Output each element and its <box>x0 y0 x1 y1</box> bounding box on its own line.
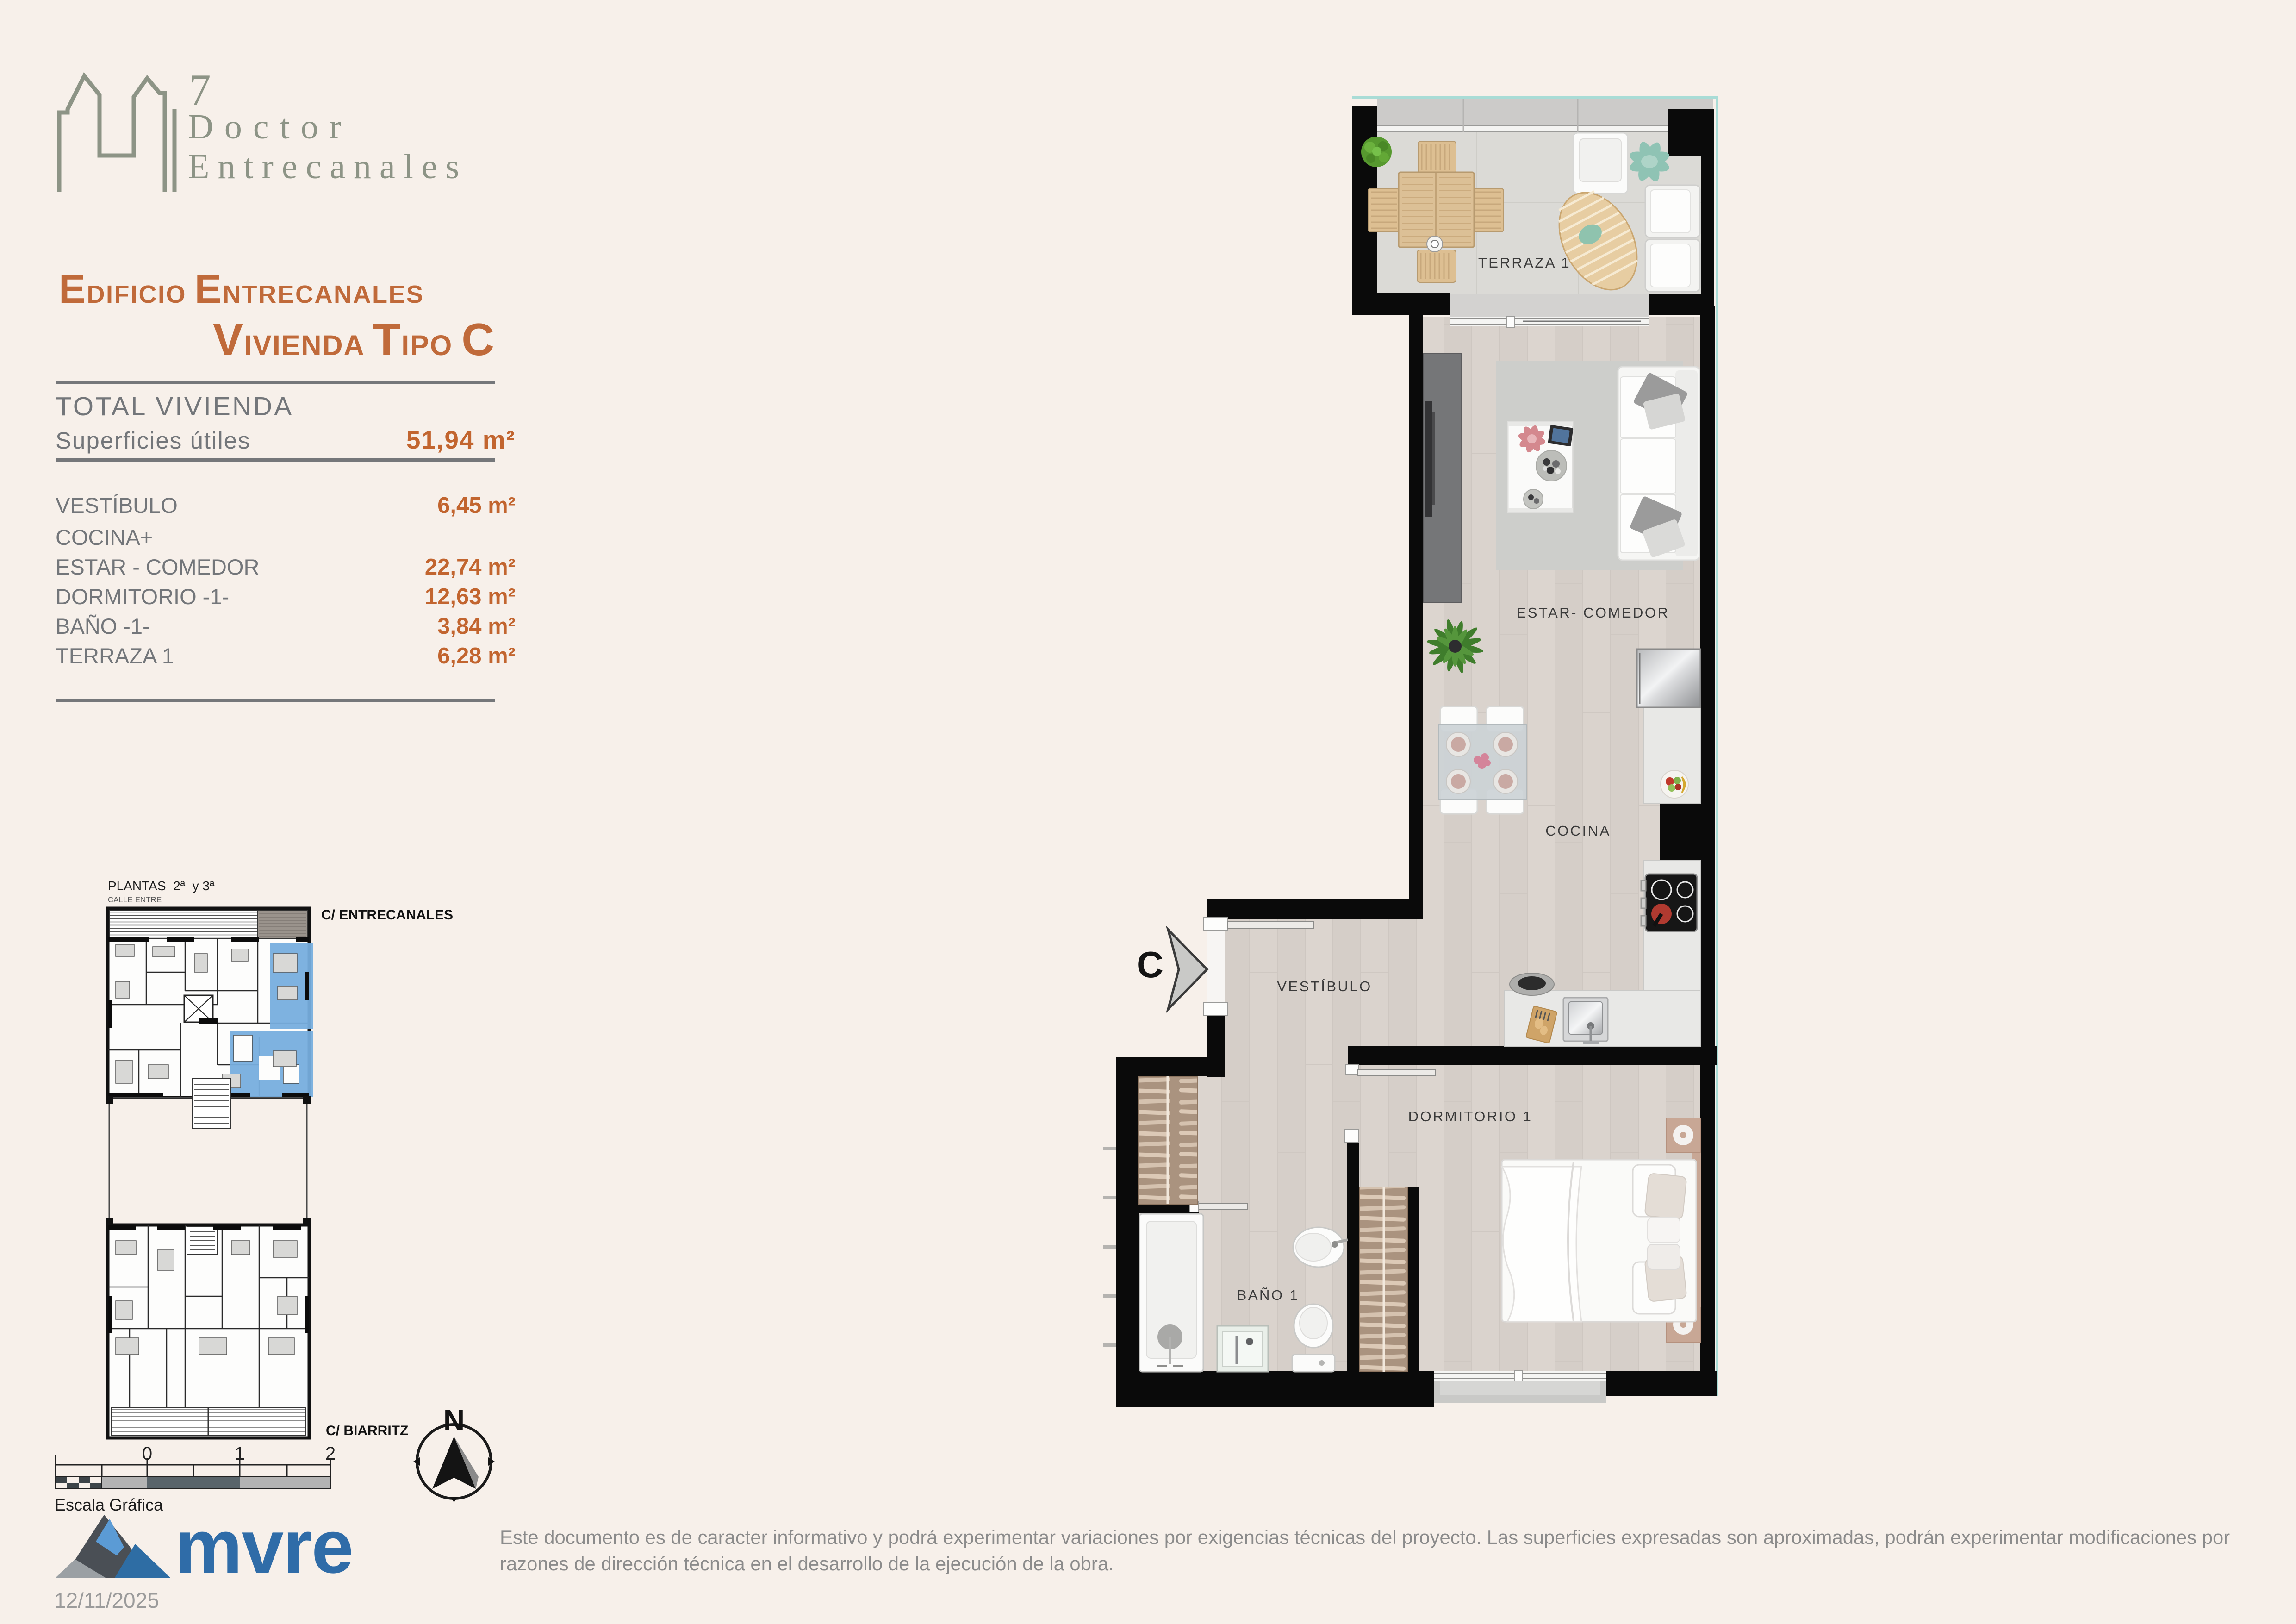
svg-text:N: N <box>443 1404 465 1437</box>
